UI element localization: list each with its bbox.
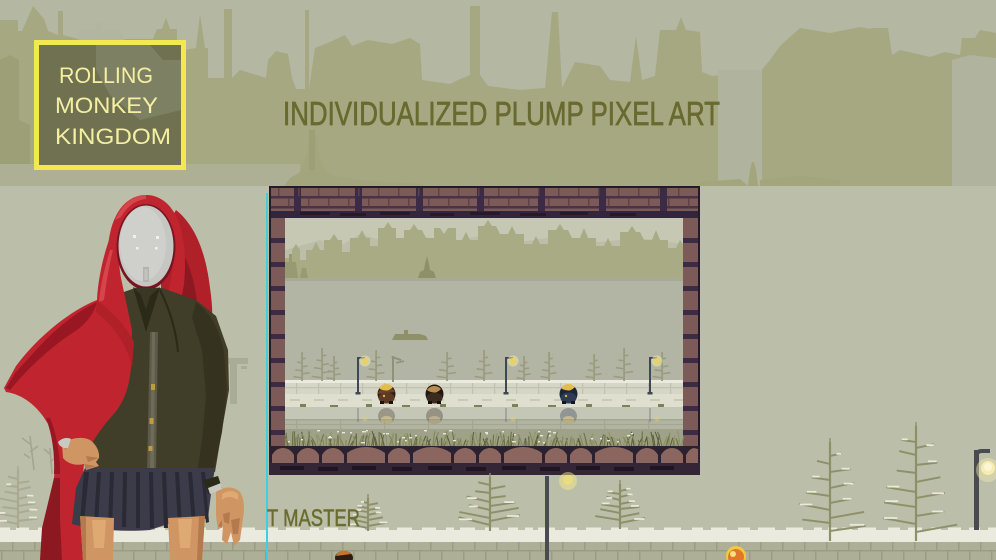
svg-text:MONKEY: MONKEY bbox=[55, 93, 158, 118]
svg-text:T MASTER: T MASTER bbox=[267, 505, 360, 532]
svg-text:INDIVIDUALIZED PLUMP PIXEL ART: INDIVIDUALIZED PLUMP PIXEL ART bbox=[283, 95, 720, 132]
svg-text:KINGDOM: KINGDOM bbox=[55, 124, 171, 149]
svg-text:ROLLING: ROLLING bbox=[59, 63, 153, 88]
